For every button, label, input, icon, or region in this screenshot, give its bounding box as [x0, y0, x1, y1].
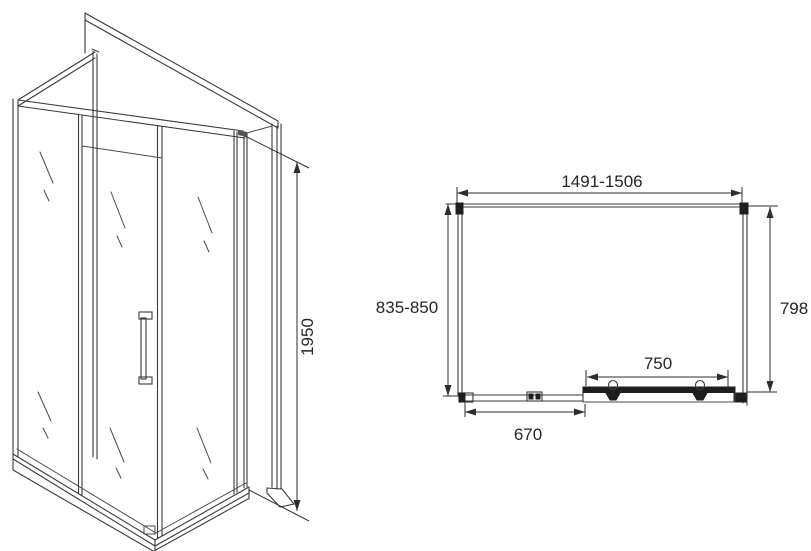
fixed-panel-dimension: 670 [465, 398, 585, 444]
frame-posts [13, 99, 247, 538]
side-view-drawing: 1950 [13, 13, 317, 551]
height-dimension-label: 1950 [298, 318, 317, 356]
front-header-rail [18, 100, 245, 158]
door-width-dimension-label: 750 [644, 354, 672, 373]
width-dimension: 1491-1506 [457, 172, 742, 204]
plan-view-drawing: 1491-1506 835-850 798 750 [376, 172, 808, 444]
plan-right-wall [734, 203, 748, 405]
inner-depth-dimension-label: 798 [780, 299, 808, 318]
fixed-panel-dimension-label: 670 [514, 425, 542, 444]
shower-enclosure-drawing: 1950 [0, 0, 811, 551]
wall-bracket-top-left [456, 203, 463, 214]
plan-back-wall [446, 204, 747, 207]
width-dimension-label: 1491-1506 [561, 172, 642, 191]
wall-bracket-bottom-right [734, 393, 746, 402]
back-panel [85, 13, 278, 128]
inner-depth-dimension: 798 [747, 206, 808, 392]
plan-front-assembly [459, 381, 735, 403]
door-width-dimension: 750 [586, 354, 728, 390]
right-side-panel [247, 124, 294, 507]
technical-drawing-canvas: 1950 [0, 0, 811, 551]
sliding-door-bar [583, 387, 735, 393]
left-side-panel [18, 49, 99, 459]
glass-shine-marks [38, 152, 212, 479]
wall-bracket-top-right [740, 203, 748, 214]
shower-tray [13, 449, 249, 551]
plan-left-wall [456, 203, 463, 396]
depth-dimension-label: 835-850 [376, 298, 438, 317]
door-handle [139, 312, 152, 384]
depth-dimension: 835-850 [376, 204, 459, 396]
